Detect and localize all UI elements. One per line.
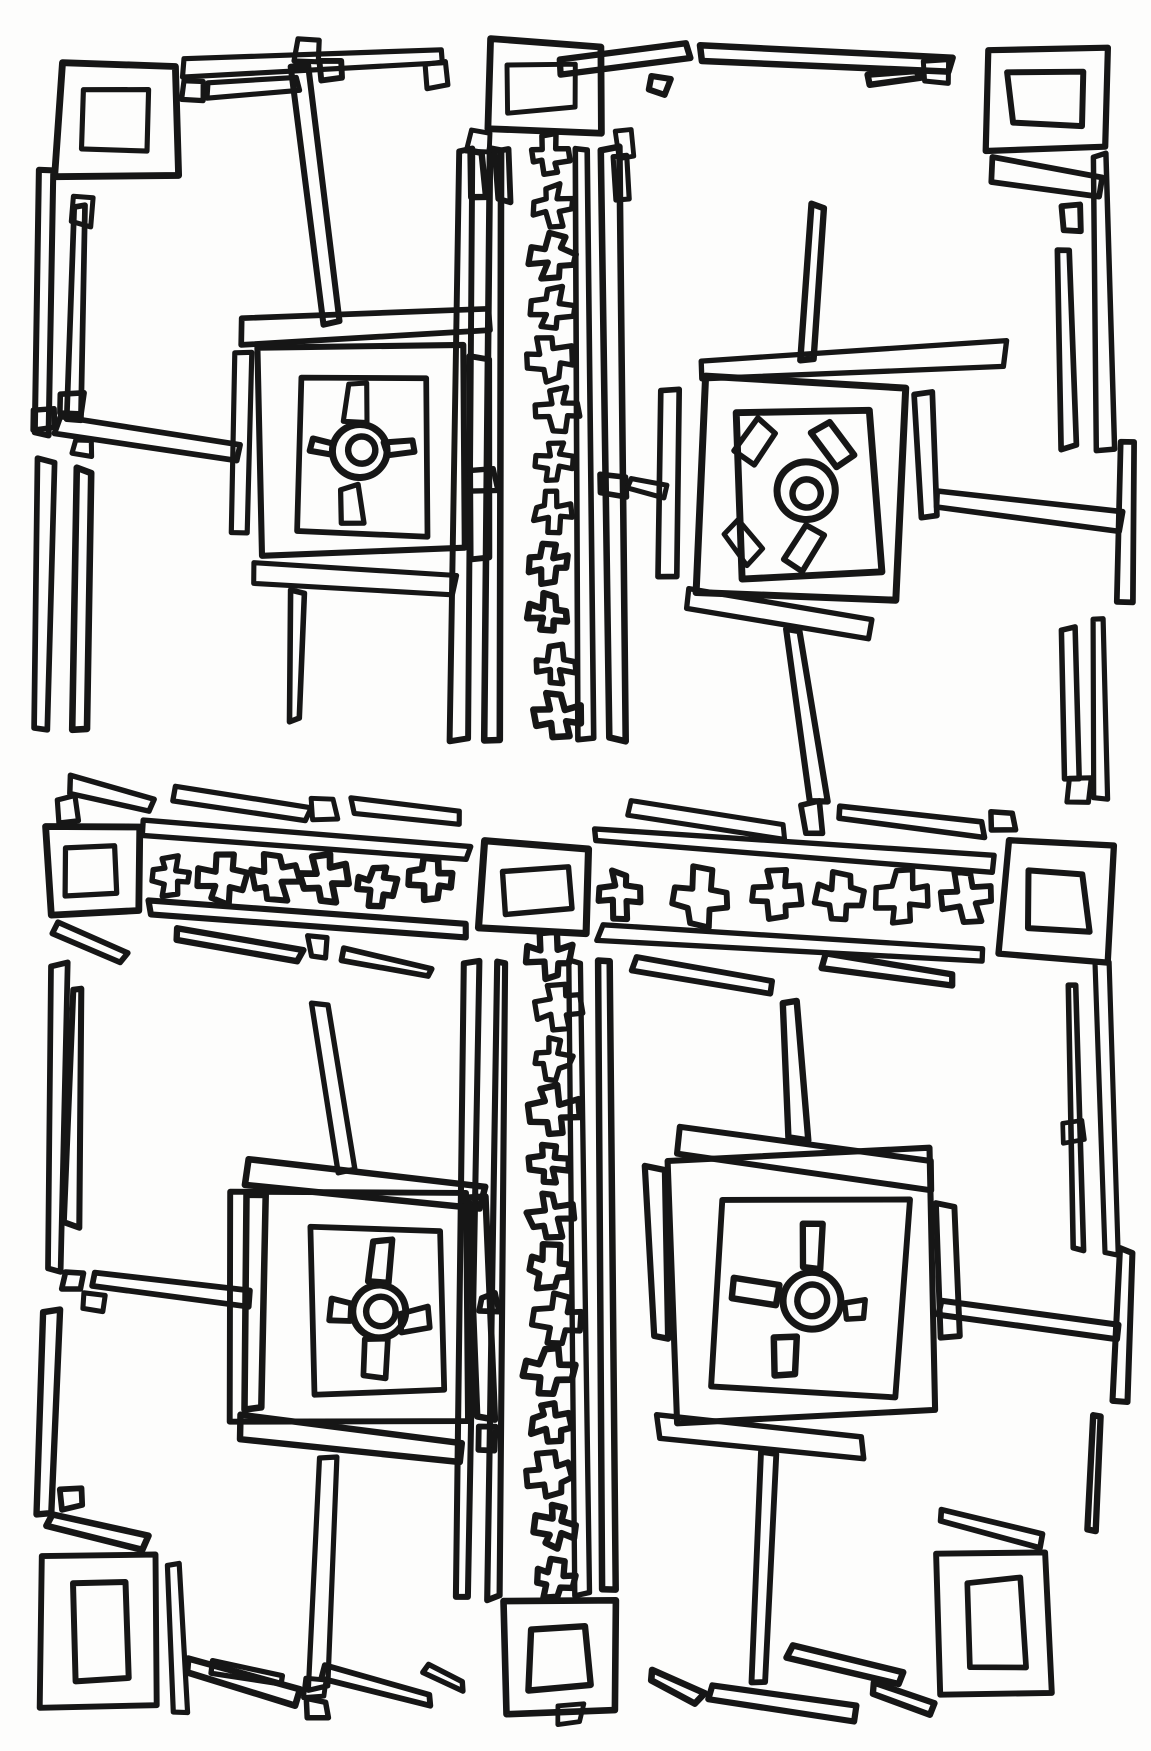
sketch-page <box>0 0 1151 1751</box>
hand-drawn-pattern-canvas <box>0 0 1151 1751</box>
